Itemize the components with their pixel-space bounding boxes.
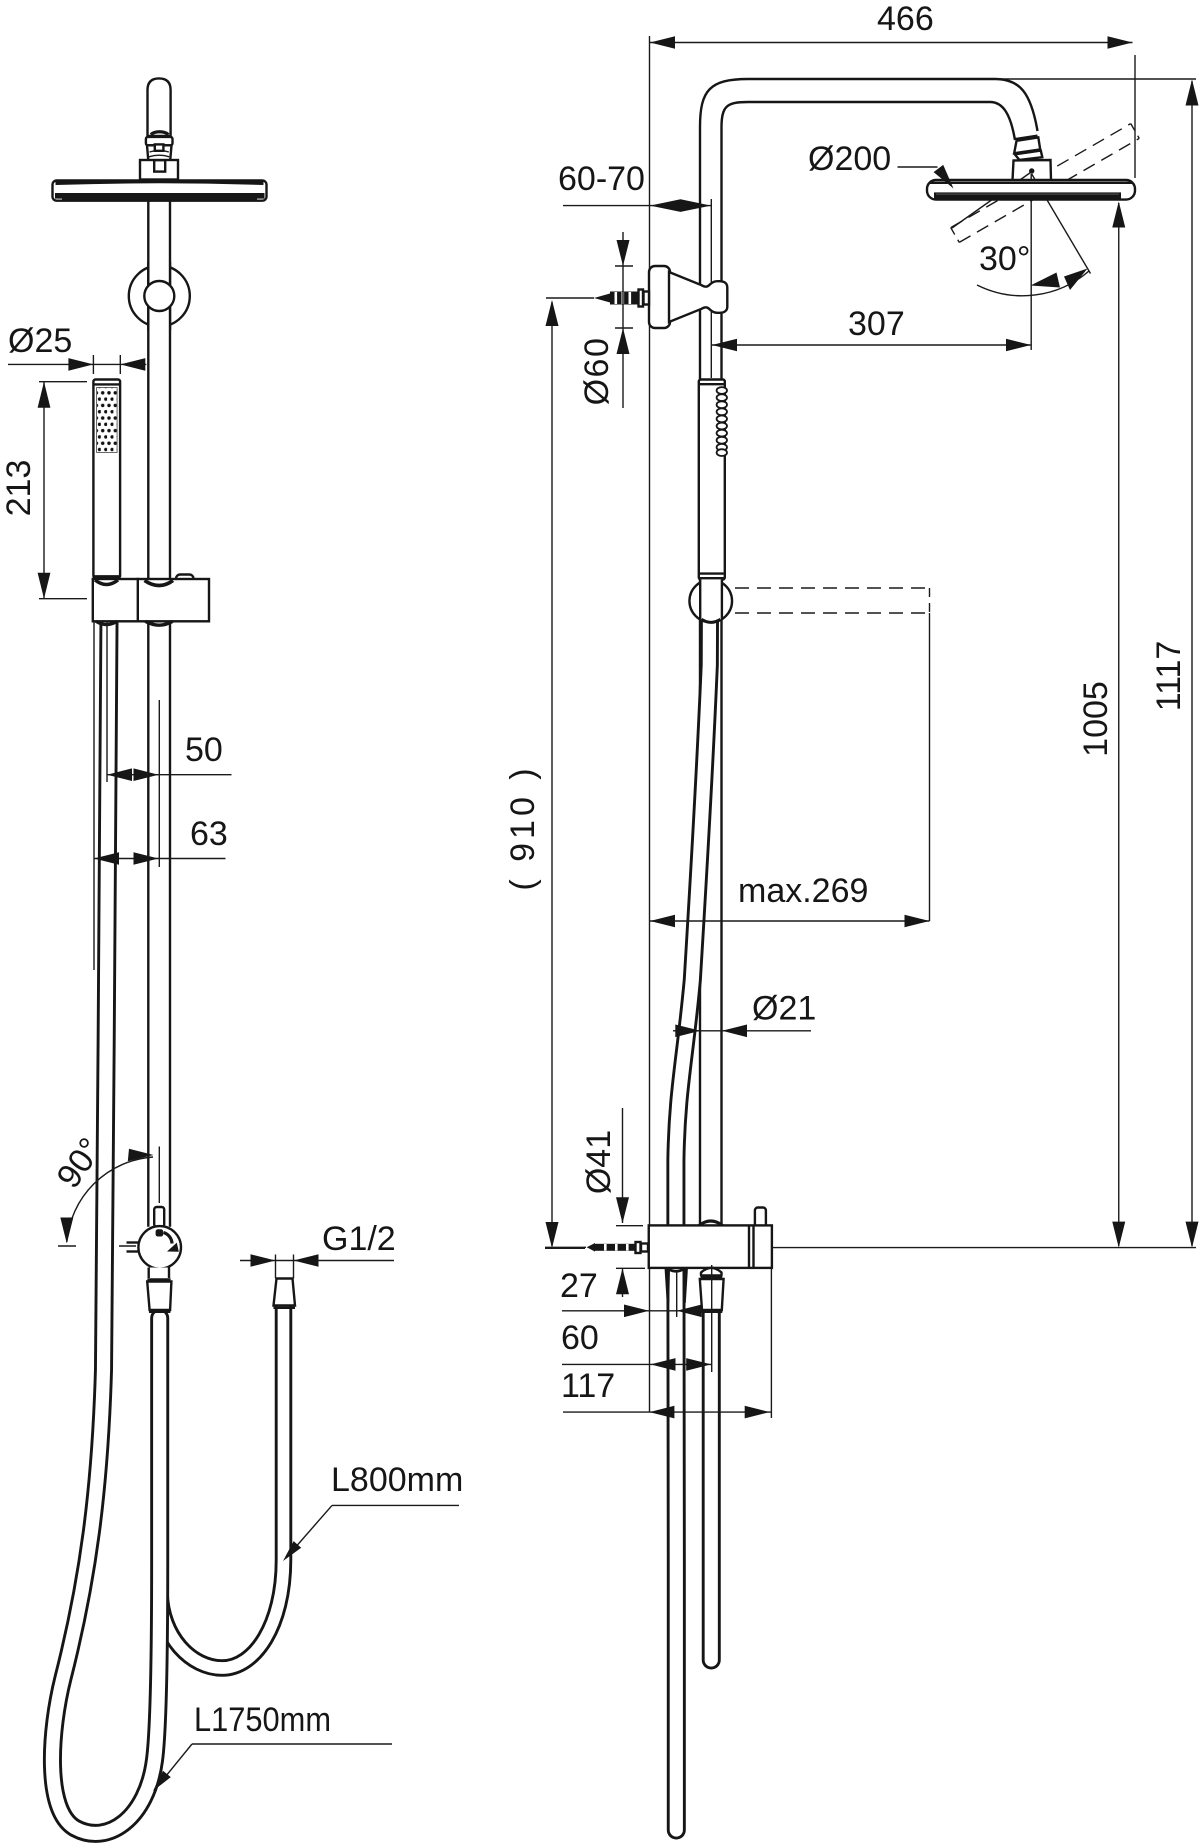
svg-text:max.269: max.269: [738, 872, 868, 910]
svg-text:63: 63: [190, 815, 228, 853]
svg-text:Ø200: Ø200: [808, 140, 891, 178]
svg-text:L800mm: L800mm: [331, 1461, 463, 1499]
svg-text:60-70: 60-70: [558, 160, 645, 198]
svg-text:307: 307: [848, 305, 905, 343]
svg-text:L1750mm: L1750mm: [194, 1701, 331, 1739]
svg-text:60: 60: [561, 1319, 599, 1357]
svg-text:1117: 1117: [1150, 641, 1188, 712]
svg-text:50: 50: [185, 731, 223, 769]
svg-text:466: 466: [877, 0, 934, 38]
svg-text:117: 117: [561, 1367, 615, 1405]
svg-text:1005: 1005: [1077, 681, 1115, 757]
svg-text:G1/2: G1/2: [322, 1220, 396, 1258]
svg-text:Ø21: Ø21: [752, 990, 816, 1028]
svg-text:213: 213: [0, 460, 38, 517]
svg-text:( 910 ): ( 910 ): [504, 764, 542, 890]
svg-text:Ø41: Ø41: [580, 1130, 618, 1194]
svg-text:Ø60: Ø60: [578, 337, 616, 406]
svg-text:30°: 30°: [979, 240, 1030, 278]
svg-text:Ø25: Ø25: [8, 322, 72, 360]
svg-text:27: 27: [560, 1267, 598, 1305]
